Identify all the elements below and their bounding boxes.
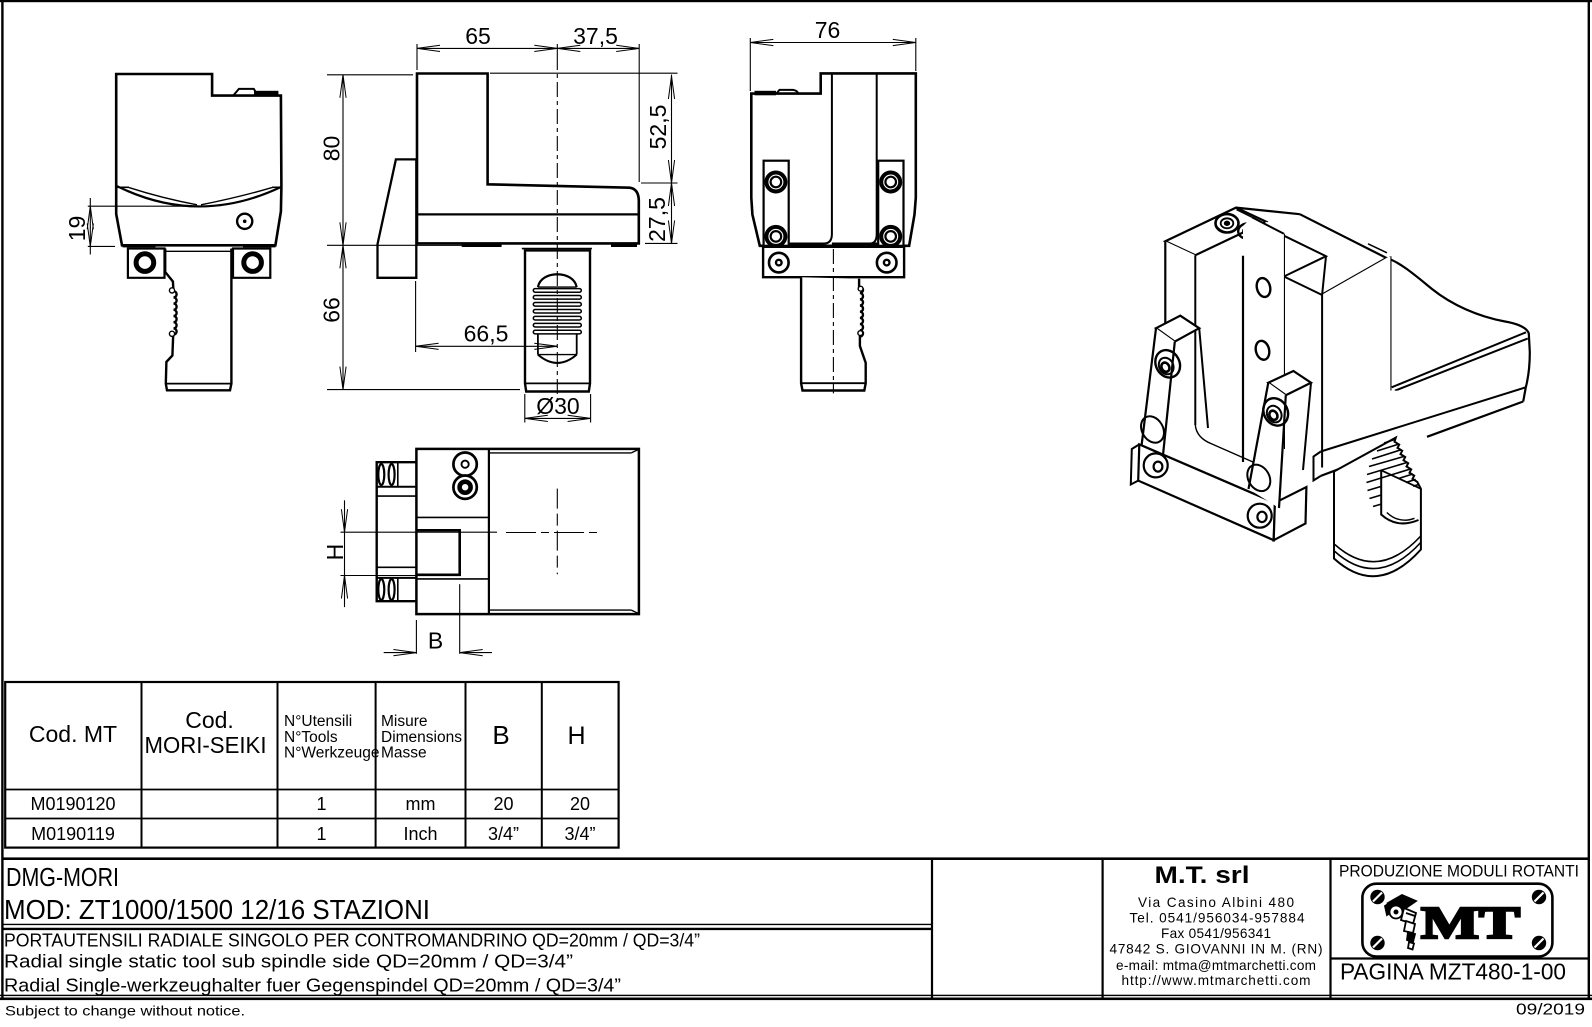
svg-text:B: B bbox=[428, 628, 443, 654]
svg-text:Subject to change without noti: Subject to change without notice. bbox=[5, 1003, 245, 1019]
svg-text:PRODUZIONE MODULI ROTANTI: PRODUZIONE MODULI ROTANTI bbox=[1339, 862, 1579, 881]
svg-text:N°Werkzeuge: N°Werkzeuge bbox=[284, 745, 380, 762]
svg-text:N°Tools: N°Tools bbox=[284, 729, 338, 746]
svg-text:Dimensions: Dimensions bbox=[381, 729, 462, 746]
svg-text:M0190120: M0190120 bbox=[30, 794, 115, 814]
svg-text:MT: MT bbox=[1421, 897, 1520, 948]
svg-text:M.T. srl: M.T. srl bbox=[1155, 862, 1250, 889]
svg-text:mm: mm bbox=[406, 794, 436, 814]
svg-text:80: 80 bbox=[319, 136, 345, 162]
svg-text:65: 65 bbox=[465, 23, 491, 49]
svg-text:37,5: 37,5 bbox=[573, 23, 618, 49]
svg-text:19: 19 bbox=[64, 216, 90, 242]
svg-text:47842 S. GIOVANNI IN M. (RN): 47842 S. GIOVANNI IN M. (RN) bbox=[1110, 942, 1323, 957]
svg-text:H: H bbox=[567, 722, 585, 750]
svg-text:Radial Single-werkzeughalter f: Radial Single-werkzeughalter fuer Gegens… bbox=[4, 976, 621, 996]
svg-text:1: 1 bbox=[316, 794, 326, 814]
svg-text:e-mail: mtma@mtmarchetti.com: e-mail: mtma@mtmarchetti.com bbox=[1116, 958, 1316, 973]
svg-text:20: 20 bbox=[493, 794, 513, 814]
svg-text:H: H bbox=[322, 544, 348, 561]
svg-text:3/4”: 3/4” bbox=[488, 824, 519, 844]
svg-text:N°Utensili: N°Utensili bbox=[284, 713, 352, 730]
svg-text:Inch: Inch bbox=[403, 824, 437, 844]
svg-text:76: 76 bbox=[815, 17, 841, 43]
svg-text:MOD: ZT1000/1500 12/16 STAZION: MOD: ZT1000/1500 12/16 STAZIONI bbox=[4, 894, 430, 925]
svg-text:27,5: 27,5 bbox=[644, 197, 670, 242]
svg-text:09/2019: 09/2019 bbox=[1516, 1002, 1585, 1019]
svg-text:20: 20 bbox=[570, 794, 590, 814]
svg-text:PAGINA MZT480-1-00: PAGINA MZT480-1-00 bbox=[1340, 959, 1566, 985]
svg-text:http://www.mtmarchetti.com: http://www.mtmarchetti.com bbox=[1122, 973, 1311, 988]
svg-text:66: 66 bbox=[319, 297, 345, 323]
svg-text:Fax 0541/956341: Fax 0541/956341 bbox=[1161, 926, 1271, 941]
svg-text:Tel. 0541/956034-957884: Tel. 0541/956034-957884 bbox=[1130, 911, 1305, 926]
svg-text:Misure: Misure bbox=[381, 713, 428, 730]
svg-text:3/4”: 3/4” bbox=[564, 824, 595, 844]
svg-text:66,5: 66,5 bbox=[464, 321, 509, 347]
svg-text:M0190119: M0190119 bbox=[31, 824, 115, 844]
svg-text:Ø30: Ø30 bbox=[536, 393, 579, 419]
svg-text:Masse: Masse bbox=[381, 745, 427, 762]
svg-text:MORI-SEIKI: MORI-SEIKI bbox=[145, 732, 267, 758]
svg-text:Cod. MT: Cod. MT bbox=[29, 721, 117, 747]
svg-text:PORTAUTENSILI RADIALE SINGOLO: PORTAUTENSILI RADIALE SINGOLO PER CONTRO… bbox=[4, 931, 700, 951]
svg-text:1: 1 bbox=[316, 824, 326, 844]
svg-text:B: B bbox=[492, 720, 509, 750]
svg-text:Cod.: Cod. bbox=[185, 707, 234, 733]
svg-text:DMG-MORI: DMG-MORI bbox=[6, 862, 119, 892]
svg-text:52,5: 52,5 bbox=[645, 105, 671, 150]
svg-text:Radial single static tool sub: Radial single static tool sub spindle si… bbox=[4, 952, 573, 972]
